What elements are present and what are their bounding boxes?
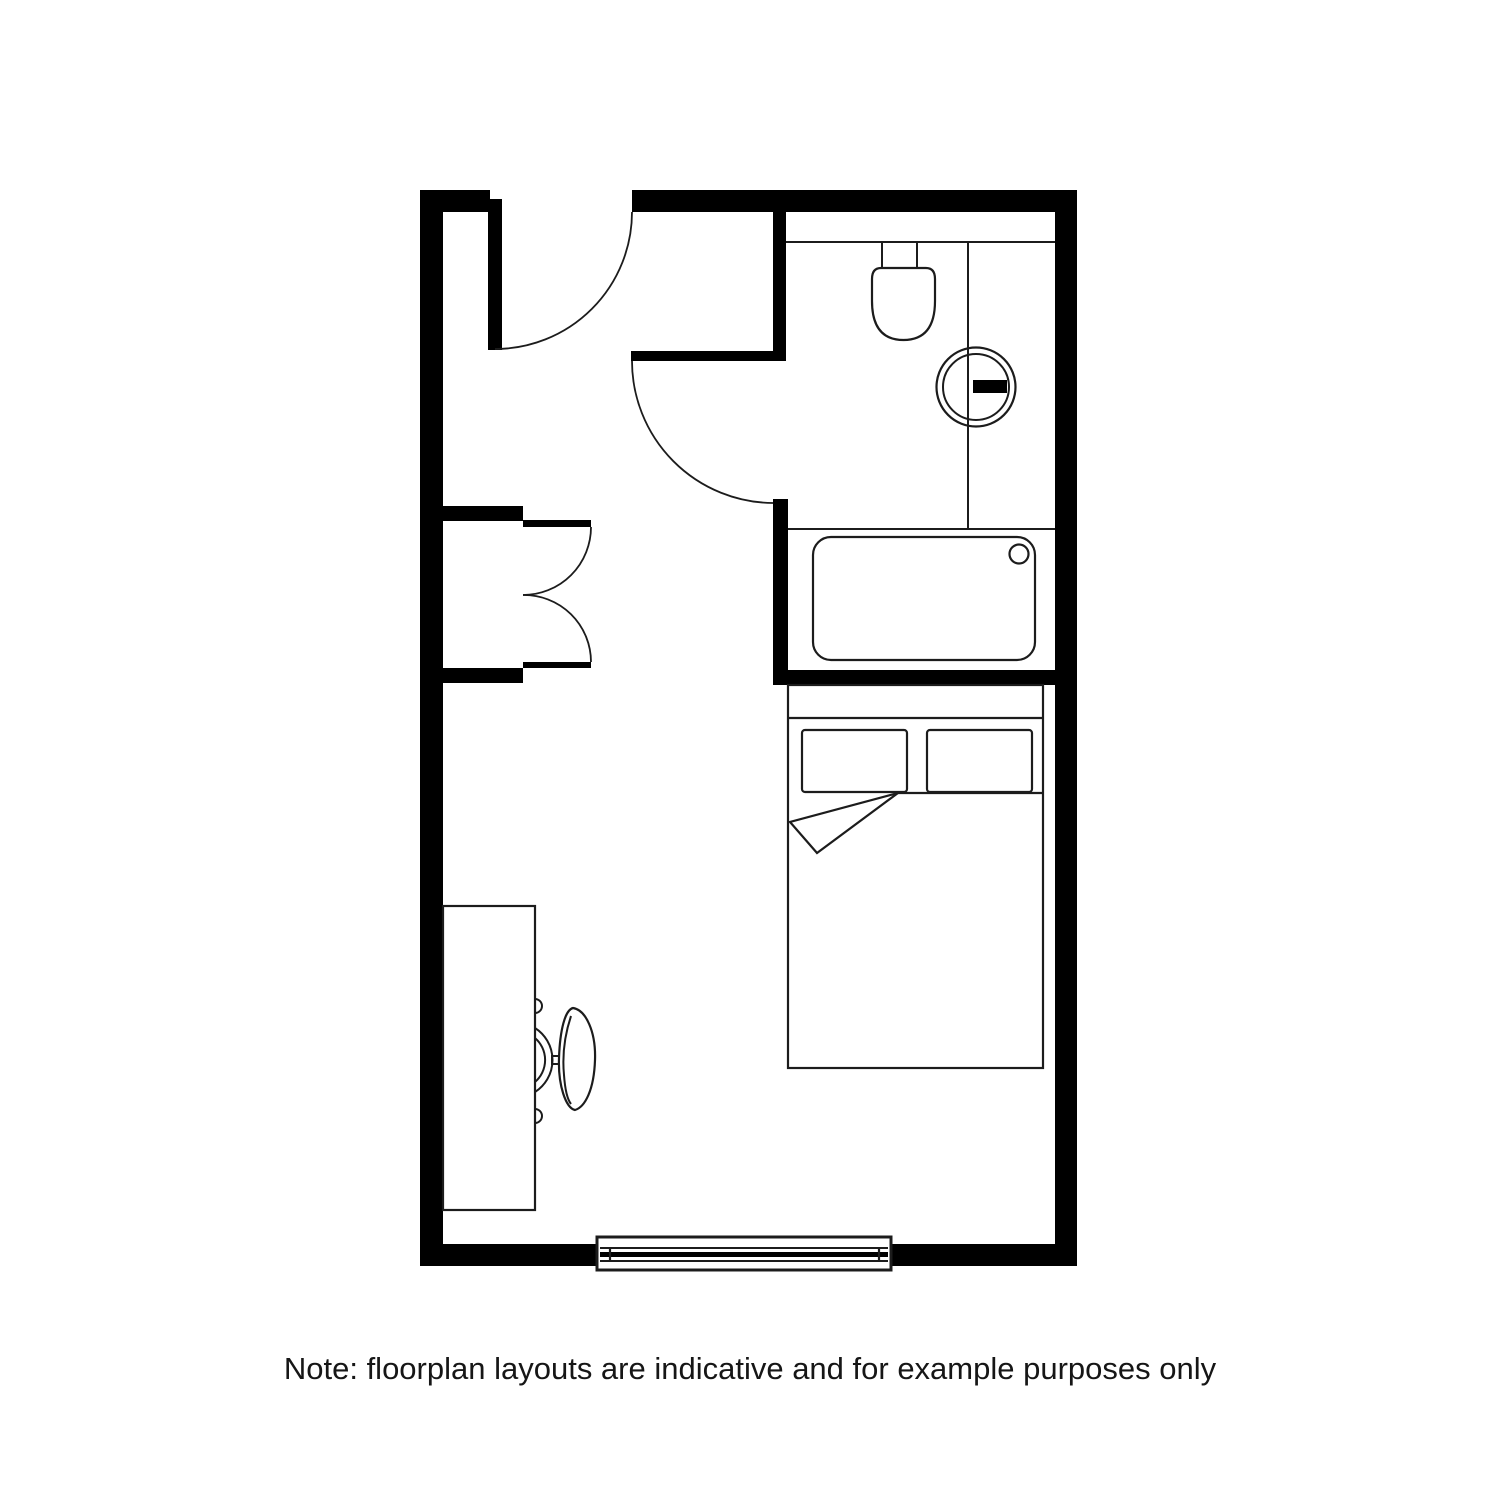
wall-bottom-right <box>891 1244 1077 1266</box>
entry-door <box>488 199 632 350</box>
window <box>597 1237 891 1270</box>
wall-bottom-left <box>420 1244 597 1266</box>
basin <box>937 348 1016 427</box>
desk <box>443 906 535 1210</box>
wall-bathroom-bottom <box>773 670 1055 685</box>
wardrobe-door-bottom-leaf <box>523 662 591 668</box>
wardrobe-doors <box>523 520 591 668</box>
shower <box>788 529 1055 660</box>
wardrobe-door-top-leaf <box>523 520 591 527</box>
wall-bathroom-lower <box>773 499 788 685</box>
wall-wardrobe-stub-top <box>443 506 523 521</box>
note-text: Note: floorplan layouts are indicative a… <box>0 1351 1500 1387</box>
basin-tap <box>973 380 1007 393</box>
chair-seat-inner-arc <box>535 1038 545 1082</box>
wall-left <box>420 190 443 1266</box>
pillow-right <box>927 730 1032 792</box>
entry-door-leaf <box>488 199 502 350</box>
wall-top <box>632 190 1077 212</box>
bathroom-door <box>631 351 786 503</box>
shower-drain <box>1010 545 1029 564</box>
bathroom-door-swing-arc <box>632 361 773 503</box>
chair-seat-outer-arc <box>535 1028 553 1092</box>
toilet-bowl <box>872 268 935 340</box>
wardrobe-door-top-arc <box>523 527 591 595</box>
bed <box>788 685 1043 1068</box>
bathroom-fixtures <box>786 242 1055 660</box>
shower-tray <box>813 537 1035 660</box>
wall-bathroom-upper <box>773 212 786 361</box>
bathroom-door-leaf <box>631 351 786 361</box>
floorplan-page: Note: floorplan layouts are indicative a… <box>0 0 1500 1500</box>
window-glass-line <box>600 1252 888 1257</box>
floorplan-drawing <box>0 0 1500 1500</box>
wall-top-left-piece <box>420 190 490 212</box>
desk-chair <box>535 999 595 1123</box>
wardrobe-door-bottom-arc <box>523 595 591 662</box>
desk-area <box>443 906 595 1210</box>
toilet <box>872 242 935 340</box>
entry-door-swing-arc <box>495 212 632 349</box>
wall-wardrobe-stub-bottom <box>443 668 523 683</box>
pillow-left <box>802 730 907 792</box>
wall-right <box>1055 190 1077 1266</box>
